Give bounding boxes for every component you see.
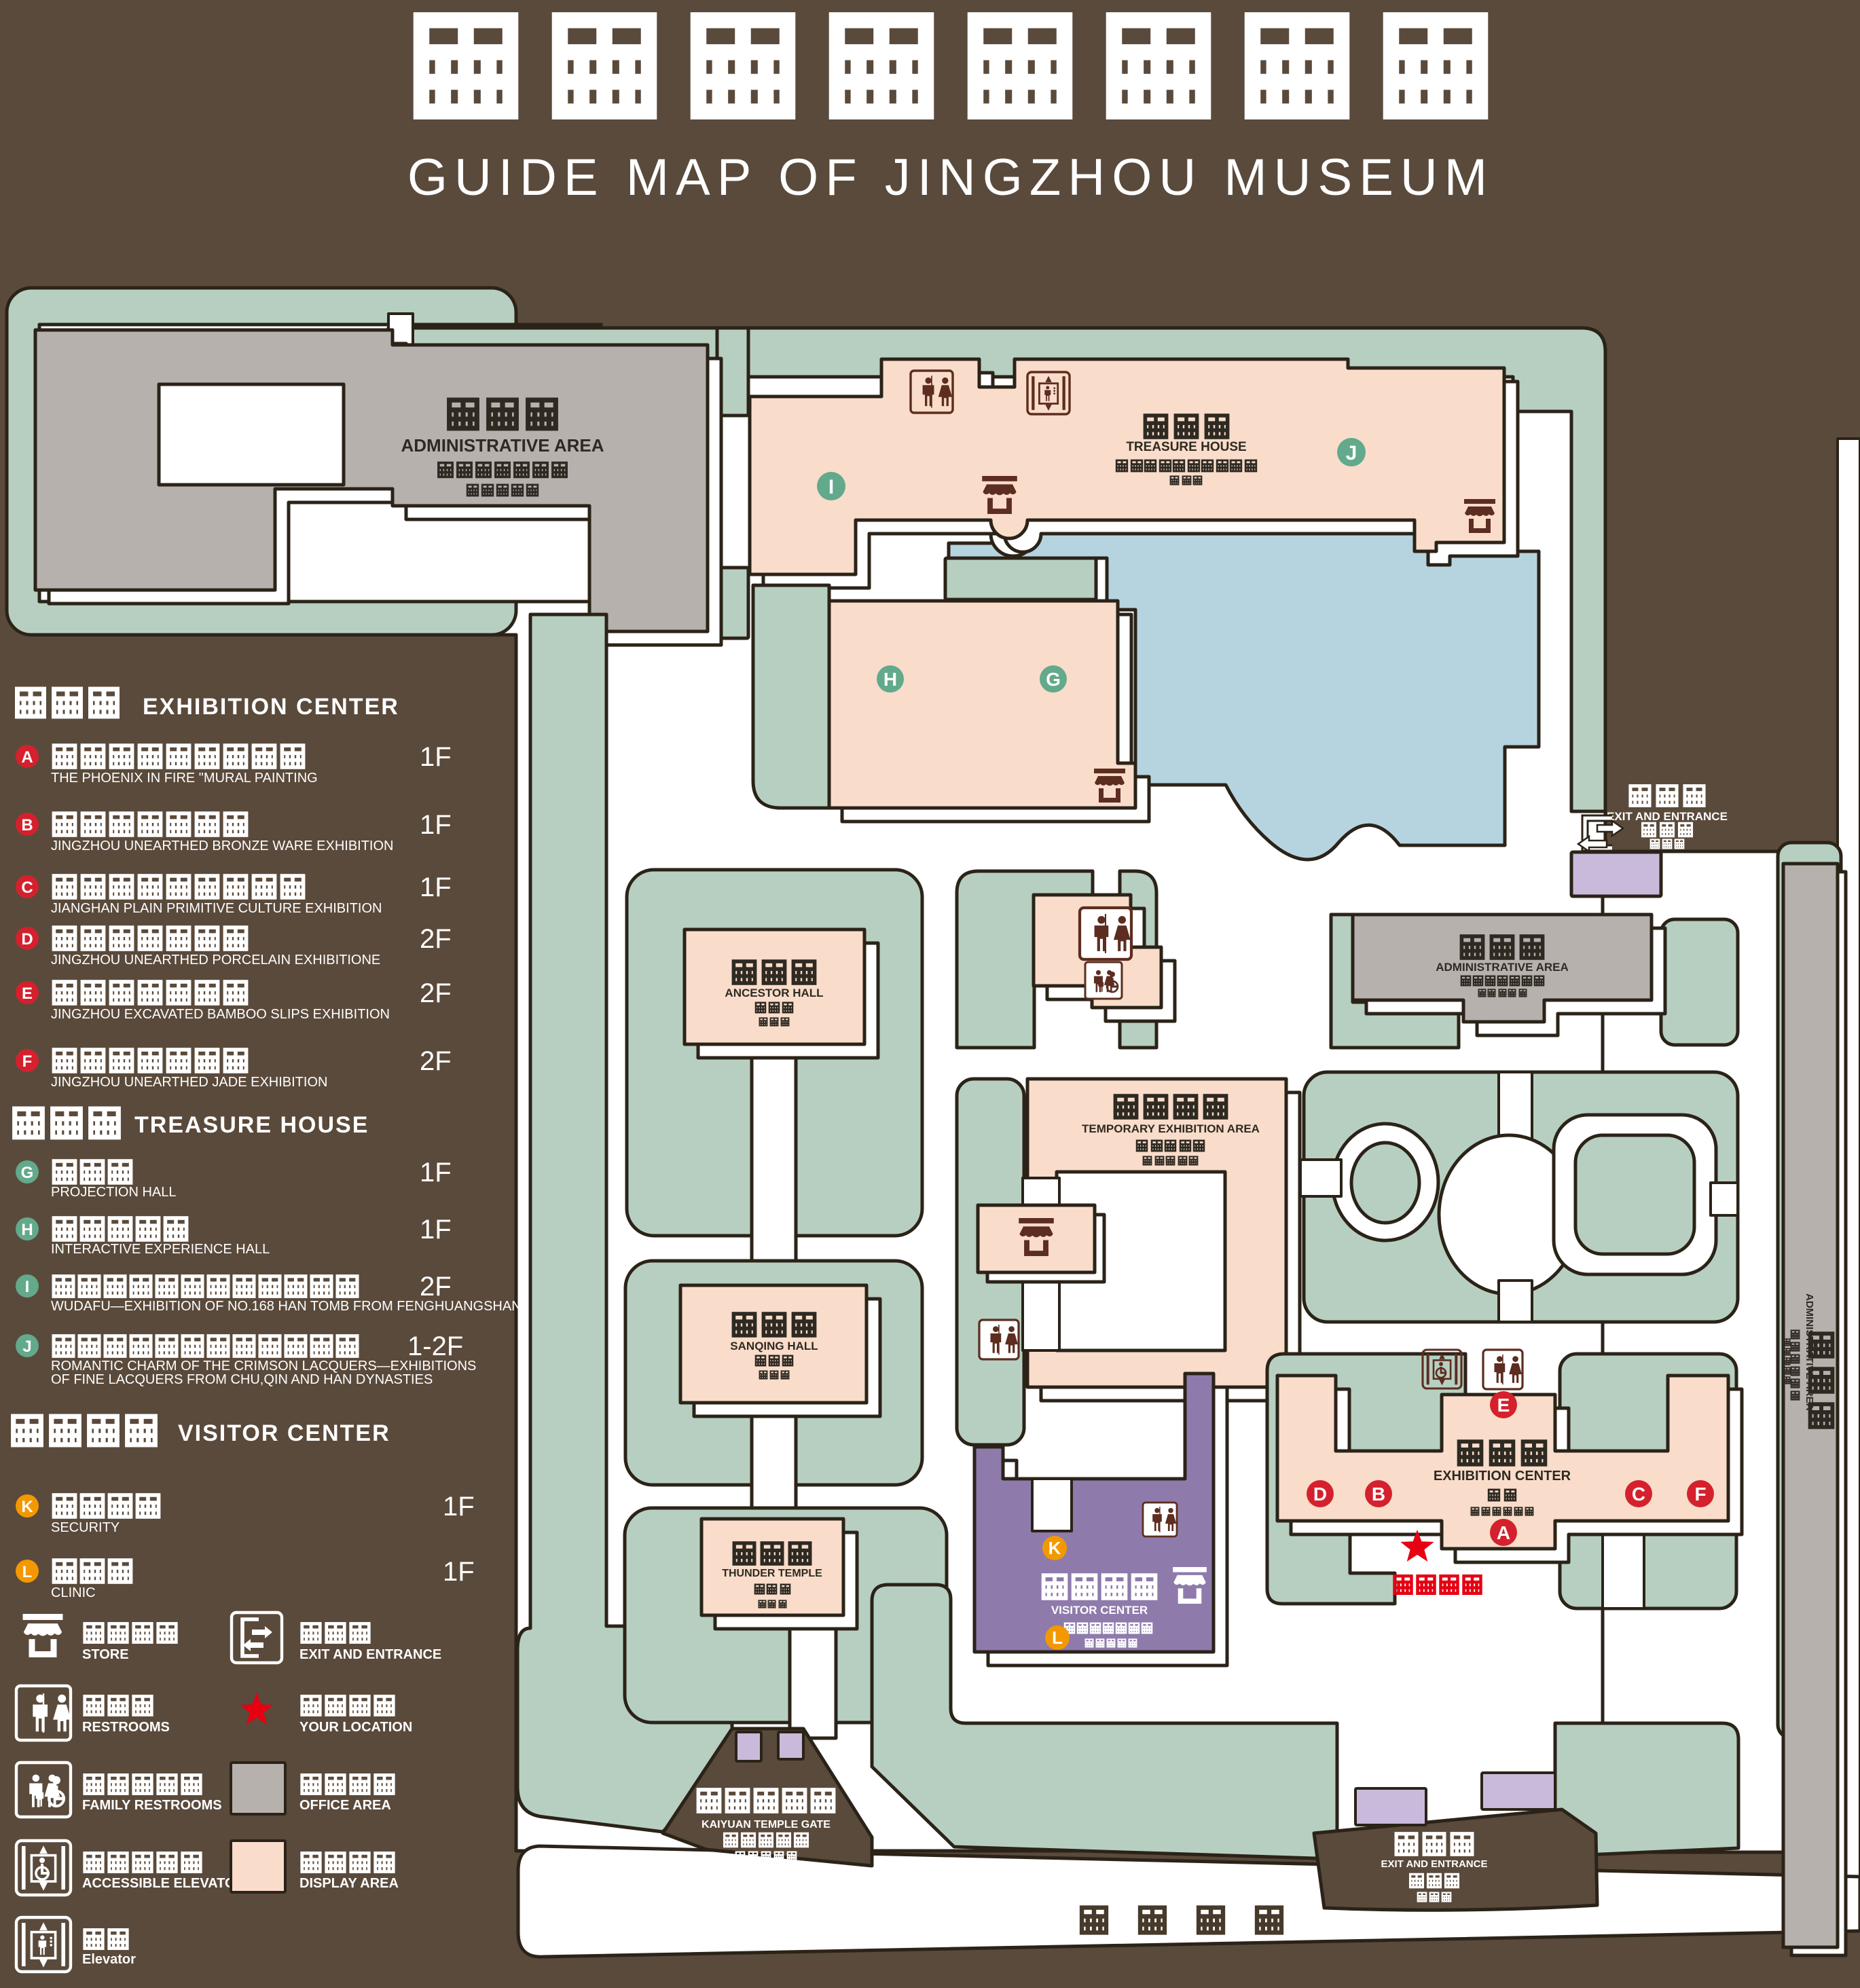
svg-text:J: J bbox=[22, 1338, 31, 1356]
svg-text:GUIDE MAP OF JINGZHOU MUSEUM: GUIDE MAP OF JINGZHOU MUSEUM bbox=[407, 149, 1494, 206]
svg-text:PROJECTION HALL: PROJECTION HALL bbox=[51, 1185, 176, 1200]
svg-text:1F: 1F bbox=[443, 1492, 475, 1522]
svg-text:D: D bbox=[1313, 1484, 1327, 1505]
svg-text:STORE: STORE bbox=[82, 1647, 129, 1662]
svg-text:2F: 2F bbox=[420, 1272, 452, 1302]
svg-text:K: K bbox=[21, 1498, 33, 1516]
svg-text:2F: 2F bbox=[420, 978, 452, 1008]
svg-text:THUNDER TEMPLE: THUNDER TEMPLE bbox=[722, 1568, 822, 1579]
svg-text:EXHIBITION CENTER: EXHIBITION CENTER bbox=[1434, 1469, 1571, 1484]
svg-text:C: C bbox=[1632, 1484, 1645, 1505]
svg-text:JINGZHOU EXCAVATED BAMBOO SLIP: JINGZHOU EXCAVATED BAMBOO SLIPS EXHIBITI… bbox=[51, 1007, 390, 1022]
svg-text:SANQING HALL: SANQING HALL bbox=[730, 1340, 818, 1352]
svg-text:L: L bbox=[22, 1563, 33, 1581]
svg-text:B: B bbox=[1372, 1484, 1385, 1505]
svg-text:I: I bbox=[25, 1278, 30, 1296]
svg-text:EXIT AND ENTRANCE: EXIT AND ENTRANCE bbox=[1381, 1858, 1488, 1870]
svg-text:JINGZHOU UNEARTHED PORCELAIN E: JINGZHOU UNEARTHED PORCELAIN EXHIBITIONE bbox=[51, 953, 380, 968]
svg-text:INTERACTIVE EXPERIENCE HALL: INTERACTIVE EXPERIENCE HALL bbox=[51, 1242, 270, 1257]
svg-text:ADMINISTRATIVE AREA: ADMINISTRATIVE AREA bbox=[1436, 961, 1569, 974]
svg-text:VISITOR CENTER: VISITOR CENTER bbox=[178, 1420, 390, 1446]
svg-text:CLINIC: CLINIC bbox=[51, 1585, 96, 1600]
svg-text:F: F bbox=[1694, 1484, 1706, 1505]
svg-text:E: E bbox=[1497, 1395, 1510, 1416]
svg-text:E: E bbox=[22, 984, 33, 1003]
svg-text:2F: 2F bbox=[420, 1046, 452, 1076]
svg-text:2F: 2F bbox=[420, 924, 452, 954]
svg-text:J: J bbox=[1346, 442, 1357, 464]
svg-text:1F: 1F bbox=[420, 742, 452, 772]
svg-text:1F: 1F bbox=[420, 1215, 452, 1245]
svg-text:ADMINISTRATIVE AREA: ADMINISTRATIVE AREA bbox=[401, 435, 604, 456]
svg-text:DISPLAY AREA: DISPLAY AREA bbox=[299, 1876, 399, 1891]
svg-text:1F: 1F bbox=[420, 810, 452, 840]
svg-text:H: H bbox=[883, 669, 897, 690]
svg-text:1F: 1F bbox=[443, 1557, 475, 1587]
svg-text:RESTROOMS: RESTROOMS bbox=[82, 1720, 170, 1735]
svg-text:K: K bbox=[1048, 1538, 1061, 1558]
svg-text:ANCESTOR HALL: ANCESTOR HALL bbox=[725, 987, 823, 999]
svg-text:TREASURE HOUSE: TREASURE HOUSE bbox=[134, 1112, 369, 1138]
svg-text:JINGZHOU UNEARTHED BRONZE WARE: JINGZHOU UNEARTHED BRONZE WARE EXHIBITIO… bbox=[51, 839, 393, 853]
svg-text:THE PHOENIX IN FIRE "MURAL PAI: THE PHOENIX IN FIRE "MURAL PAINTING bbox=[51, 771, 318, 786]
svg-text:FAMILY RESTROOMS: FAMILY RESTROOMS bbox=[82, 1798, 222, 1813]
svg-text:JIANGHAN PLAIN PRIMITIVE CULTU: JIANGHAN PLAIN PRIMITIVE CULTURE EXHIBIT… bbox=[51, 901, 382, 916]
svg-text:OFFICE AREA: OFFICE AREA bbox=[299, 1798, 391, 1813]
svg-text:ACCESSIBLE ELEVATOR: ACCESSIBLE ELEVATOR bbox=[82, 1876, 246, 1891]
svg-text:ADMINISTRATIVE AREA: ADMINISTRATIVE AREA bbox=[1804, 1293, 1815, 1411]
svg-text:YOUR LOCATION: YOUR LOCATION bbox=[299, 1720, 412, 1735]
svg-text:EXHIBITION CENTER: EXHIBITION CENTER bbox=[143, 694, 399, 720]
svg-text:1F: 1F bbox=[420, 872, 452, 902]
svg-text:TEMPORARY EXHIBITION AREA: TEMPORARY EXHIBITION AREA bbox=[1082, 1122, 1260, 1135]
svg-text:VISITOR CENTER: VISITOR CENTER bbox=[1051, 1604, 1148, 1617]
svg-text:EXIT AND ENTRANCE: EXIT AND ENTRANCE bbox=[299, 1647, 441, 1662]
svg-text:G: G bbox=[21, 1164, 34, 1182]
svg-text:JINGZHOU UNEARTHED JADE EXHIBI: JINGZHOU UNEARTHED JADE EXHIBITION bbox=[51, 1075, 327, 1090]
svg-text:1-2F: 1-2F bbox=[407, 1331, 463, 1361]
svg-text:D: D bbox=[21, 930, 33, 949]
svg-text:EXIT AND ENTRANCE: EXIT AND ENTRANCE bbox=[1607, 810, 1728, 823]
svg-text:H: H bbox=[21, 1221, 33, 1239]
svg-text:A: A bbox=[1497, 1522, 1510, 1543]
svg-text:G: G bbox=[1046, 669, 1061, 690]
svg-text:SECURITY: SECURITY bbox=[51, 1520, 120, 1535]
svg-text:A: A bbox=[21, 748, 33, 767]
svg-text:TREASURE HOUSE: TREASURE HOUSE bbox=[1126, 440, 1246, 454]
svg-text:F: F bbox=[22, 1052, 33, 1071]
svg-text:C: C bbox=[21, 879, 33, 897]
svg-text:B: B bbox=[21, 816, 33, 834]
svg-text:1F: 1F bbox=[420, 1158, 452, 1188]
svg-text:L: L bbox=[1052, 1627, 1063, 1648]
svg-text:KAIYUAN TEMPLE GATE: KAIYUAN TEMPLE GATE bbox=[701, 1819, 831, 1830]
svg-text:OF FINE LACQUERS FROM CHU,QIN: OF FINE LACQUERS FROM CHU,QIN AND HAN DY… bbox=[51, 1372, 433, 1387]
svg-text:Elevator: Elevator bbox=[82, 1952, 136, 1967]
svg-text:I: I bbox=[828, 476, 834, 498]
